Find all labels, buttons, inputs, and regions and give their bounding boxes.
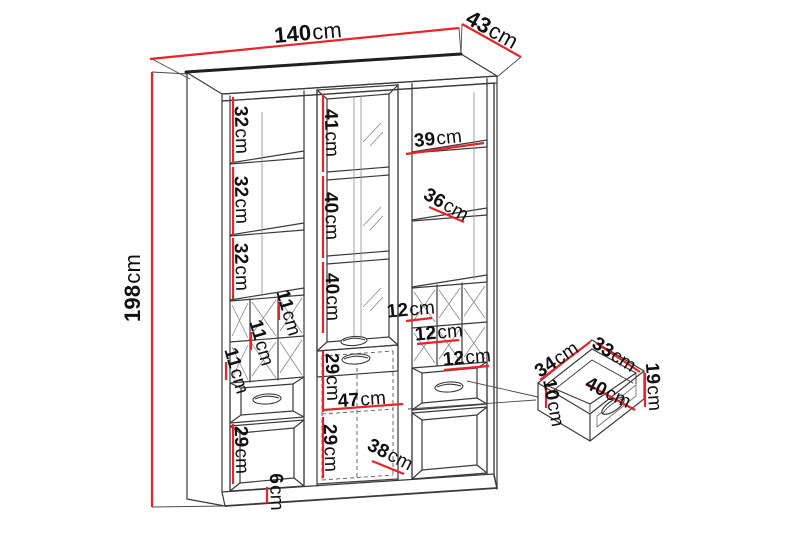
dim-right-cubby-1: 12cm: [386, 298, 436, 321]
dim-right-shelf-1: 39cm: [413, 127, 463, 151]
right-drawer-handle-icon: [435, 381, 464, 393]
dim-right-cubby-2: 12cm: [414, 321, 464, 344]
dim-glass-pane-1: 41cm: [321, 109, 342, 158]
dim-left-door: 29cm: [231, 426, 252, 475]
glass-door-handle-icon: [341, 336, 368, 347]
middle-drawer-handle-icon: [342, 353, 371, 365]
furniture-dimension-diagram: 140cm 43cm 198cm 32cm 32cm 32cm 11cm 11c…: [0, 0, 800, 533]
dim-overall-height: 198cm: [122, 254, 144, 322]
dim-left-shelf-3: 32cm: [231, 243, 252, 292]
dim-middle-width: 47cm: [337, 389, 386, 411]
dim-left-shelf-2: 32cm: [231, 176, 252, 225]
dim-left-shelf-1: 32cm: [231, 106, 252, 155]
dim-overall-width: 140cm: [273, 19, 343, 47]
dim-drawer-height: 19cm: [642, 362, 664, 411]
dim-glass-pane-3: 40cm: [322, 273, 343, 322]
leader-lines: [408, 381, 538, 409]
dim-middle-lower-section: 29cm: [320, 424, 341, 473]
left-drawer-handle-icon: [253, 393, 282, 405]
dim-plinth-height: 6cm: [266, 473, 286, 511]
dim-glass-pane-2: 40cm: [321, 192, 342, 241]
dim-right-cubby-3: 12cm: [442, 346, 492, 369]
